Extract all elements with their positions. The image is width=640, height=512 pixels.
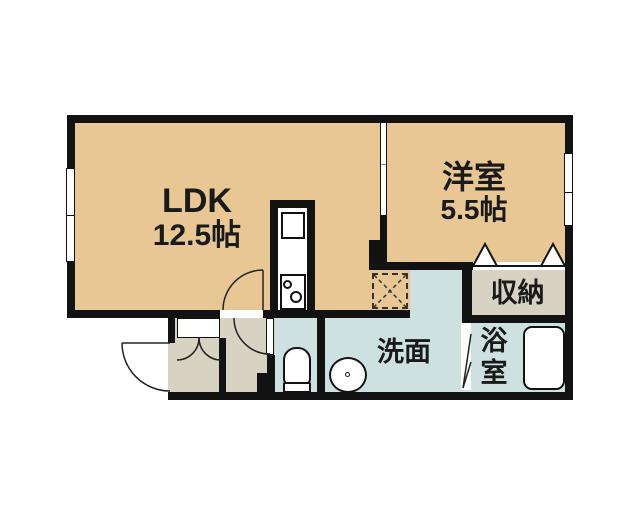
window-sash-divider <box>565 192 572 193</box>
washroom-upper-floor <box>410 270 462 318</box>
wall-entrance-pillar <box>257 373 275 392</box>
entrance-door-swing-arc <box>122 343 170 391</box>
ldk-size: 12.5帖 <box>97 220 297 252</box>
storage-label: 収納 <box>462 279 573 308</box>
wall-bedroom-bottom <box>369 262 473 270</box>
window-ldk-west <box>66 168 75 262</box>
sliding-door-ldk-bedroom <box>380 123 387 215</box>
sliding-door-break <box>381 164 386 165</box>
storage-opening <box>473 262 565 270</box>
wall-outer-top <box>67 115 573 123</box>
bathroom-label-char2: 室 <box>479 358 509 390</box>
bedroom-label: 洋室 <box>394 160 554 195</box>
basin-drain-icon <box>345 372 350 377</box>
wall-entrance-left <box>168 318 175 343</box>
wall-toilet-right <box>317 318 325 392</box>
wall-storage-bottom <box>462 315 573 323</box>
stove-burner-icon <box>283 280 292 289</box>
storage-opening-line <box>473 265 565 267</box>
kitchen-wall-right <box>307 200 315 310</box>
wall-ldk-bottom-right <box>263 310 410 318</box>
washroom-label: 洗面 <box>339 338 469 367</box>
ldk-label: LDK <box>97 183 297 220</box>
window-sash-divider <box>67 215 74 216</box>
toilet-door-leaf <box>266 318 274 355</box>
bathroom-label: 浴 室 <box>479 326 509 390</box>
shoe-cabinet <box>177 318 220 338</box>
refrigerator-space <box>372 273 408 309</box>
stove-burner-icon <box>290 291 302 303</box>
bedroom-label-block: 洋室 5.5帖 <box>394 160 554 225</box>
wall-entrance-inner <box>219 338 226 392</box>
toilet-bowl <box>283 347 311 385</box>
toilet-tank <box>283 382 311 393</box>
floorplan-canvas: LDK 12.5帖 洋室 5.5帖 収納 洗面 浴 室 <box>0 0 640 512</box>
wall-outer-bottom <box>168 392 573 400</box>
bathroom-label-char1: 浴 <box>479 326 509 358</box>
window-bedroom-east <box>564 153 573 226</box>
ldk-label-block: LDK 12.5帖 <box>97 183 297 252</box>
bedroom-size: 5.5帖 <box>394 195 554 225</box>
wall-ldk-bottom-left <box>67 310 220 318</box>
bathtub <box>523 326 565 390</box>
